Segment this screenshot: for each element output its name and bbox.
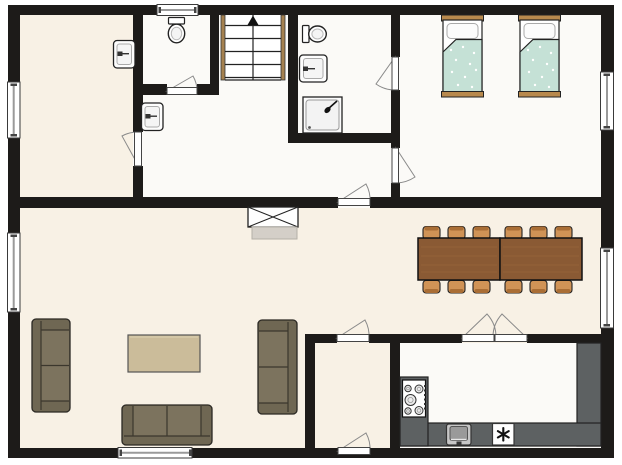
door-leaf-left — [462, 335, 494, 342]
kitchen-sink — [447, 424, 472, 446]
stair-stringer-right — [281, 15, 285, 80]
freezer-appliance — [493, 424, 515, 446]
wall-wc-bottom-left — [133, 84, 167, 95]
wall-main-divider-right — [370, 197, 614, 208]
bed-pillow — [524, 24, 555, 39]
dining-chair — [530, 227, 547, 240]
door-leaf — [167, 88, 197, 95]
door-leaf — [338, 199, 370, 206]
bathroom-shower — [303, 97, 342, 133]
drain-icon — [308, 126, 311, 129]
dining-chair — [555, 281, 572, 294]
bed-footboard — [519, 92, 561, 98]
dining-tables — [418, 238, 582, 280]
bed-single-2 — [519, 15, 561, 97]
dining-chair — [423, 227, 440, 240]
door-leaf — [135, 132, 142, 166]
stove — [403, 380, 426, 417]
tap-icon — [303, 67, 308, 72]
tap-icon — [118, 52, 123, 57]
window-dining-right — [601, 248, 614, 328]
door-leaf — [392, 148, 399, 183]
wall-entry-left — [305, 334, 315, 448]
window-living-left — [8, 233, 21, 312]
dining-chair — [505, 227, 522, 240]
door-leaf-right — [495, 335, 527, 342]
wc-toilet-icon — [168, 18, 184, 43]
window-bedroom-right — [601, 72, 614, 130]
washbasin-hallway — [142, 103, 164, 131]
wall-bathroom-bottom — [288, 133, 400, 143]
wall-kitchen-top-right — [527, 334, 601, 343]
window-room-topleft-left — [8, 82, 21, 138]
sink-tap-icon — [457, 442, 462, 446]
wall-exterior-bottom — [8, 448, 614, 458]
wall-bedroom-left-1 — [391, 15, 400, 57]
wall-kitchen-top-left — [400, 334, 462, 343]
dining-chair — [555, 227, 572, 240]
wall-wc-right — [210, 15, 219, 95]
wall-bedroom-left-2 — [391, 90, 400, 148]
dining-chair — [448, 281, 465, 294]
wall-exterior-top — [8, 5, 614, 15]
bed-pillow — [447, 24, 478, 39]
fireplace-hearth — [252, 227, 297, 239]
tap-icon — [146, 114, 151, 119]
stair-stringer-left — [221, 15, 225, 80]
window-living-bottom — [118, 448, 192, 459]
washbasin-room-topleft — [114, 41, 136, 69]
bed-single-1 — [442, 15, 484, 97]
wall-exterior-left — [8, 5, 20, 458]
sofa-left — [32, 319, 70, 412]
dining-table-section — [418, 238, 500, 280]
floor-plan-canvas — [0, 0, 622, 465]
dining-chair — [423, 281, 440, 294]
bed-footboard — [442, 92, 484, 98]
bathroom-washbasin — [300, 55, 328, 82]
dining-table-section — [500, 238, 582, 280]
dining-chair — [505, 281, 522, 294]
bathroom-toilet-icon — [303, 26, 327, 43]
sofa-bottom — [122, 405, 212, 445]
wall-bathroom-left — [288, 15, 298, 143]
door-leaf — [338, 448, 370, 455]
dining-chair — [473, 227, 490, 240]
wall-wc-bottom-right — [197, 84, 219, 95]
dining-chair — [530, 281, 547, 294]
window-wc-top — [157, 5, 198, 16]
wall-entry-right — [390, 334, 400, 448]
dining-chair — [448, 227, 465, 240]
door-leaf — [337, 335, 369, 342]
sofa-right — [258, 320, 297, 414]
staircase — [221, 15, 285, 80]
coffee-table — [128, 335, 200, 372]
fireplace — [248, 207, 298, 239]
dining-chair — [473, 281, 490, 294]
door-leaf — [392, 57, 399, 90]
